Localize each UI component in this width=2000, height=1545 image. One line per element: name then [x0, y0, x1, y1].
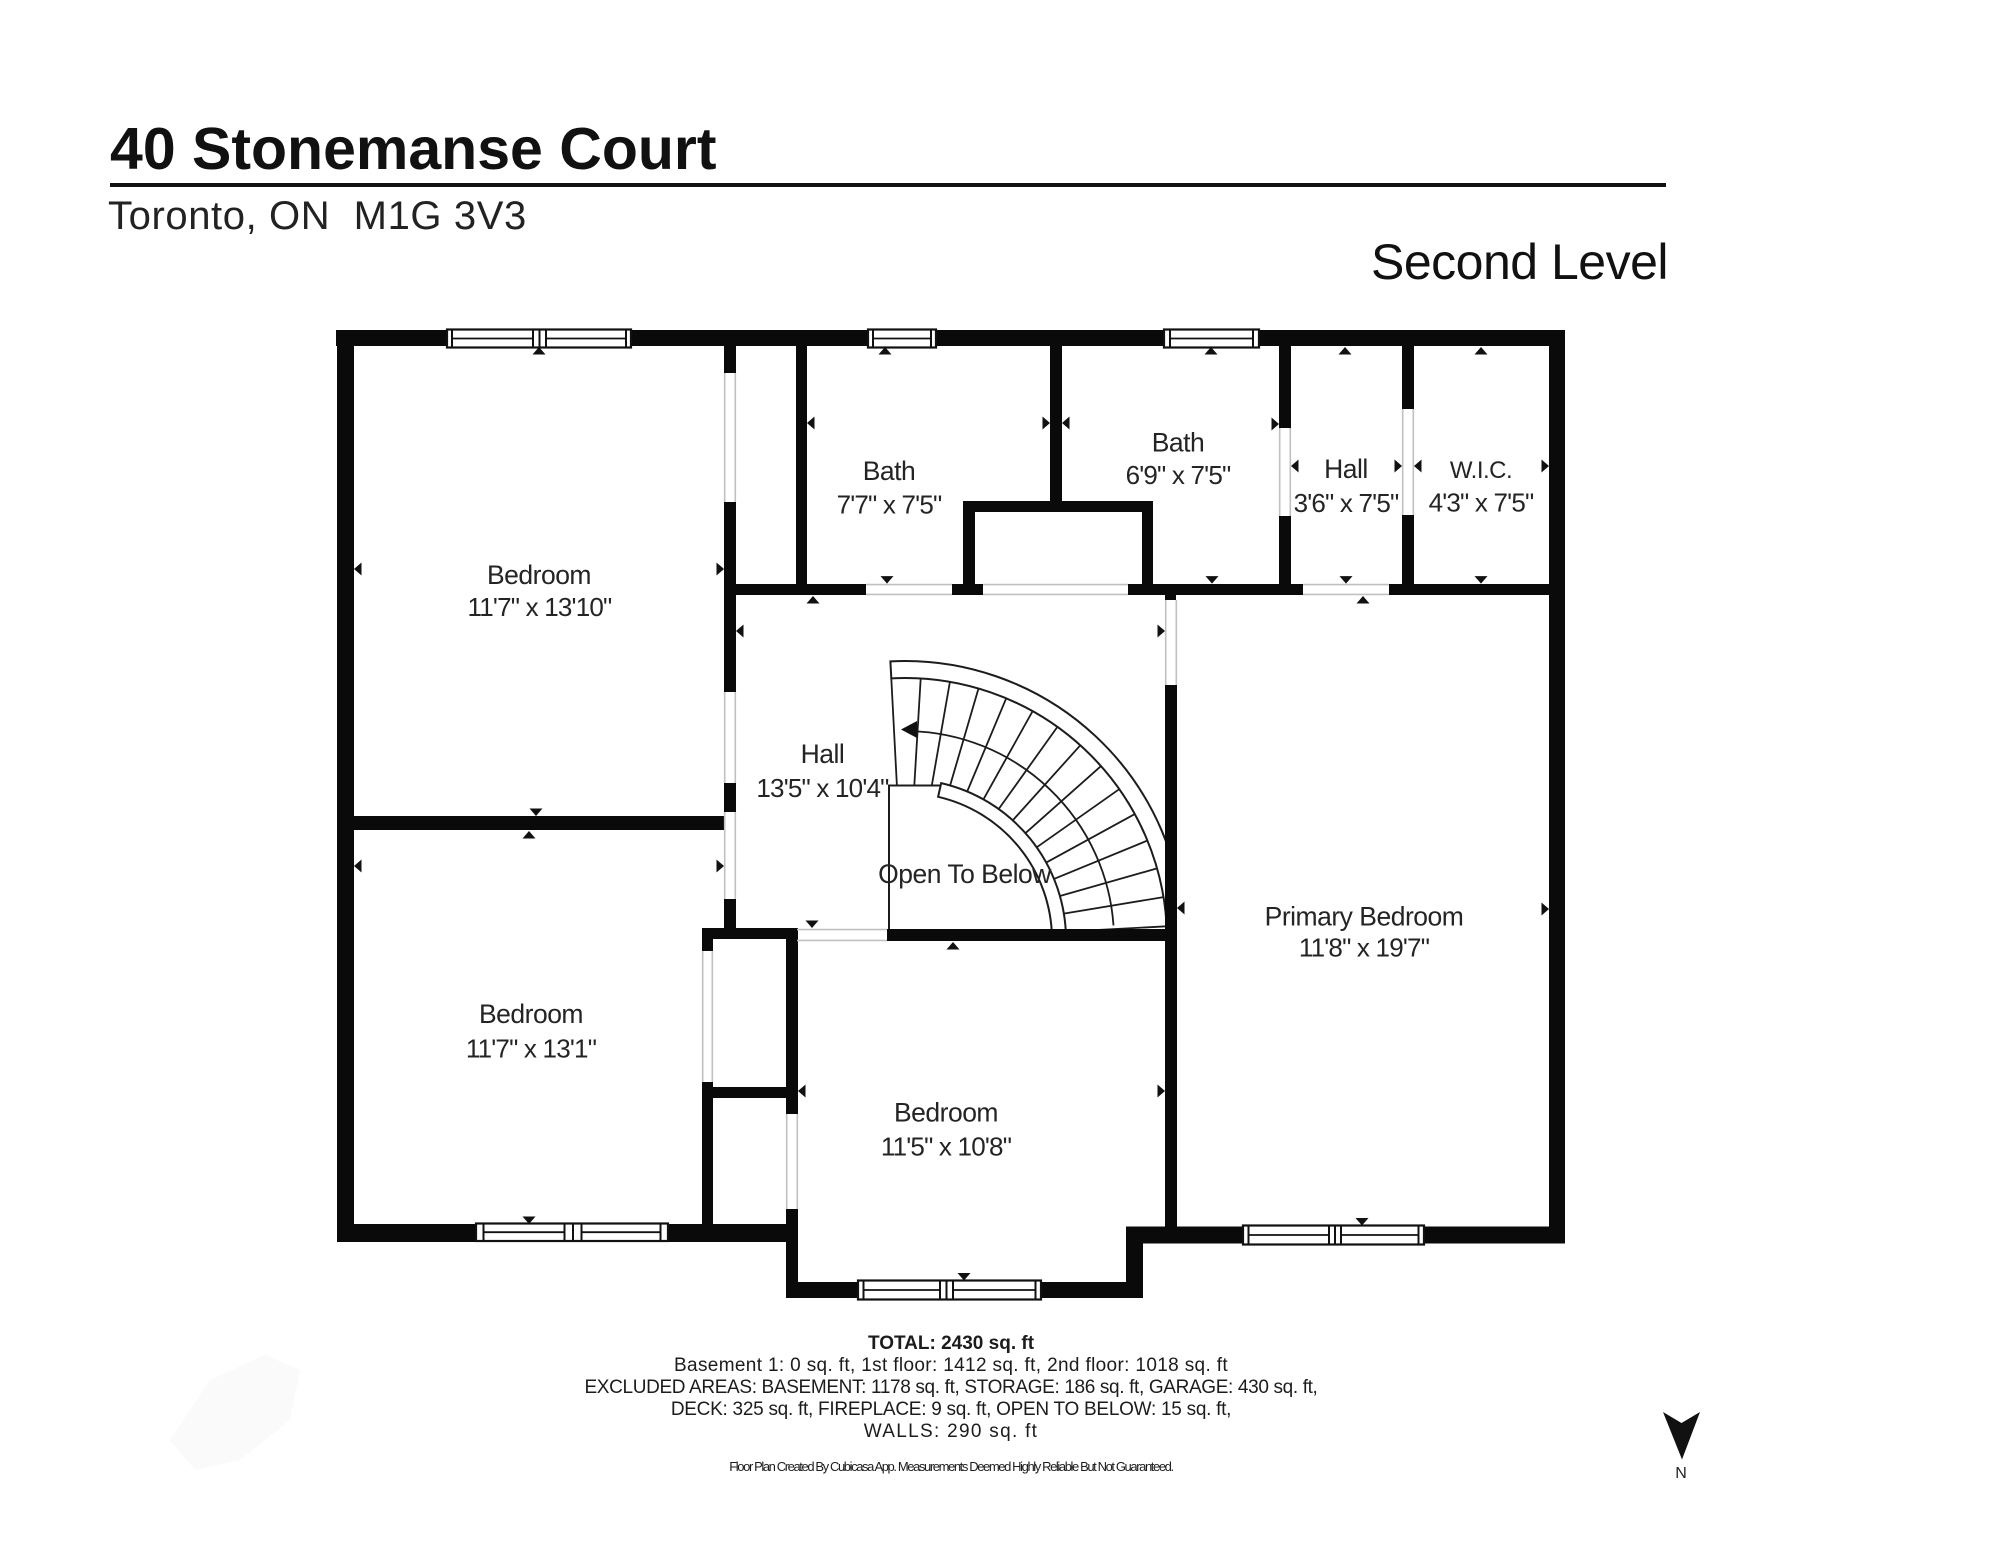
svg-text:6'9" x 7'5": 6'9" x 7'5" — [1126, 460, 1231, 490]
svg-text:13'5" x 10'4": 13'5" x 10'4" — [756, 773, 889, 803]
svg-text:Bath: Bath — [1152, 428, 1205, 458]
svg-text:Bedroom: Bedroom — [479, 999, 583, 1029]
svg-text:W.I.C.: W.I.C. — [1450, 457, 1512, 484]
svg-text:11'5" x 10'8": 11'5" x 10'8" — [881, 1132, 1012, 1162]
svg-text:Open To Below: Open To Below — [878, 859, 1052, 889]
svg-text:Hall: Hall — [1324, 454, 1368, 484]
svg-text:Primary Bedroom: Primary Bedroom — [1265, 902, 1464, 932]
svg-text:Hall: Hall — [801, 739, 845, 769]
svg-text:Bedroom: Bedroom — [487, 560, 591, 590]
svg-text:Bedroom: Bedroom — [894, 1098, 998, 1128]
svg-text:11'8" x 19'7": 11'8" x 19'7" — [1299, 933, 1430, 963]
svg-text:11'7" x 13'1": 11'7" x 13'1" — [466, 1034, 597, 1064]
svg-text:Bath: Bath — [863, 456, 916, 486]
svg-text:4'3" x 7'5": 4'3" x 7'5" — [1429, 488, 1534, 518]
svg-text:7'7" x 7'5": 7'7" x 7'5" — [837, 490, 942, 520]
svg-text:3'6" x 7'5": 3'6" x 7'5" — [1294, 488, 1399, 518]
svg-text:11'7" x 13'10": 11'7" x 13'10" — [468, 592, 612, 622]
